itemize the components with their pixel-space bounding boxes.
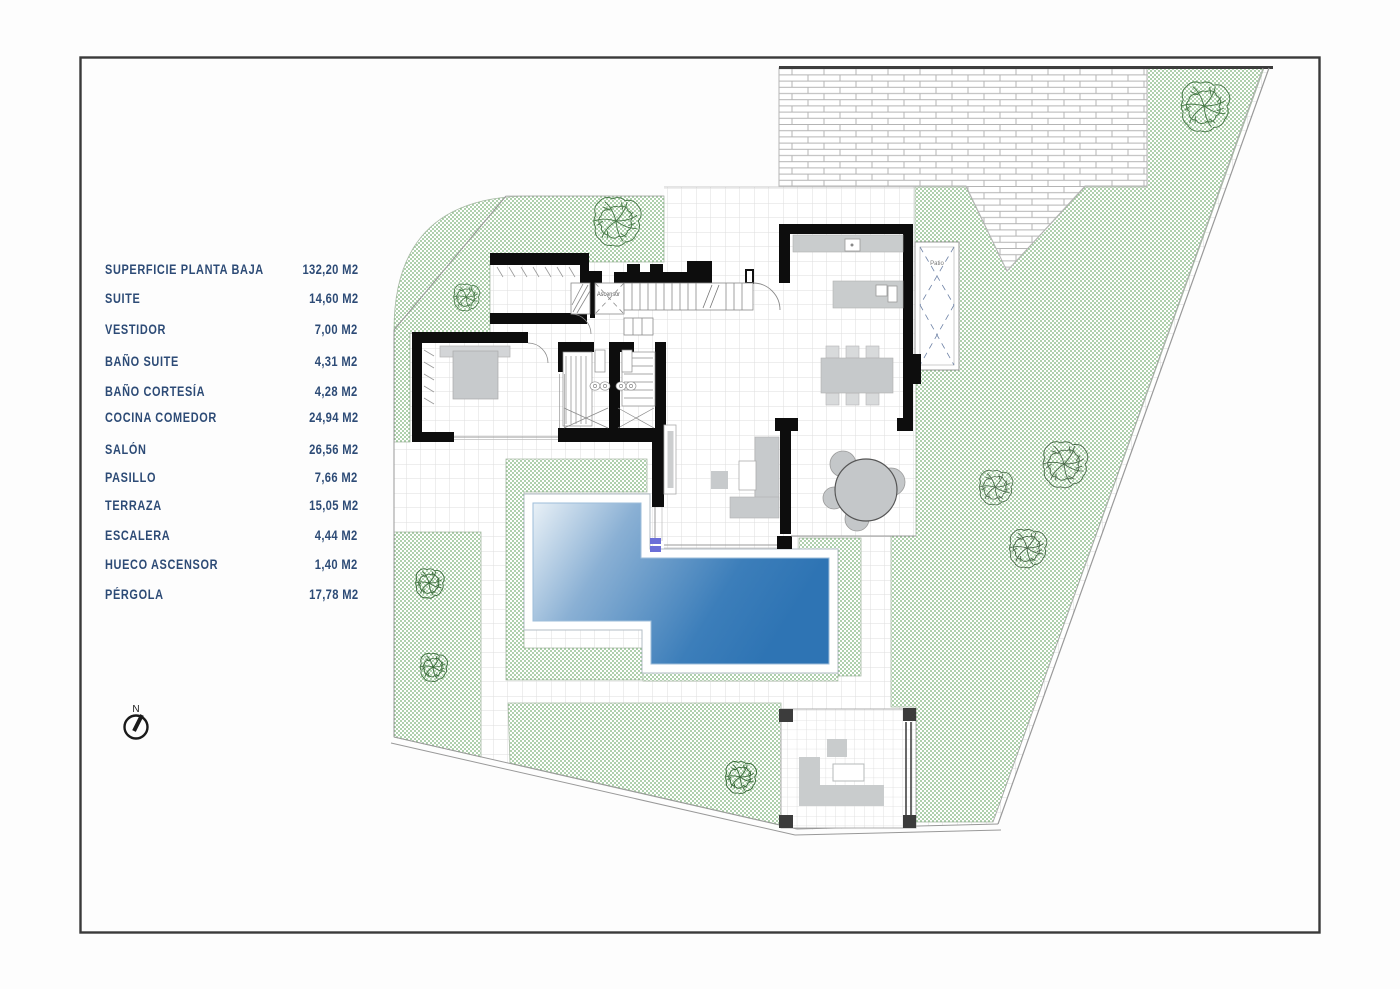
svg-text:N: N [132, 704, 139, 715]
svg-text:Patio: Patio [930, 261, 944, 267]
svg-text:Ascensor: Ascensor [597, 292, 620, 298]
